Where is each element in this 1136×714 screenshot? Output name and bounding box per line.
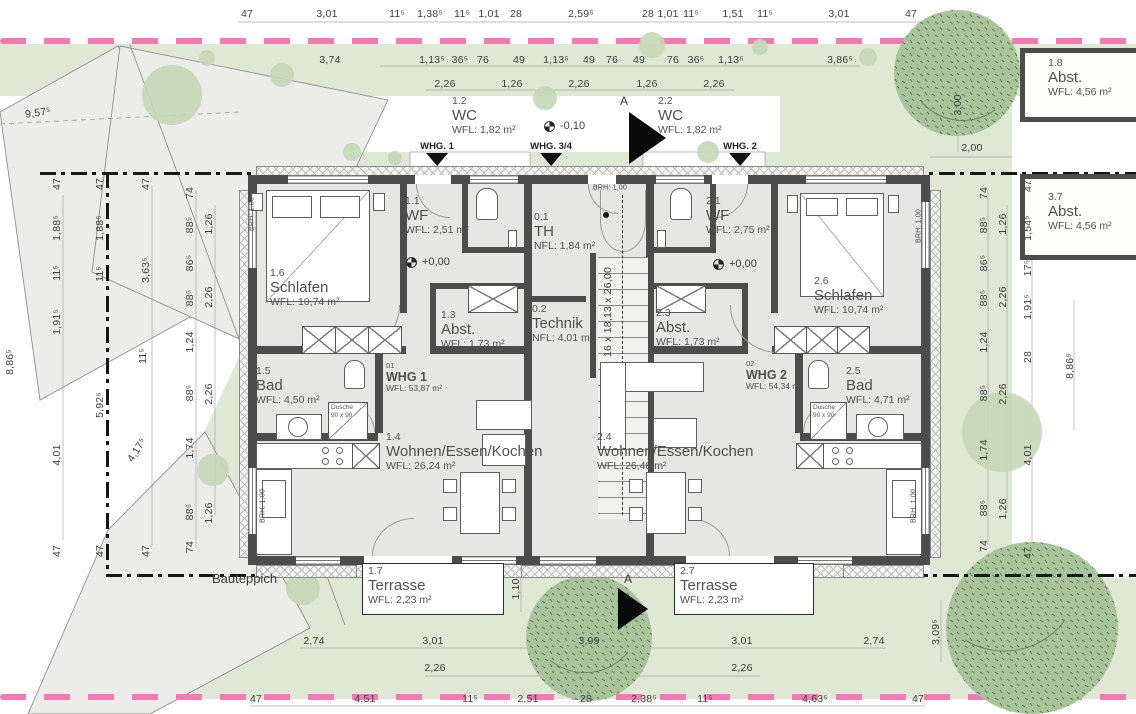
dimension-label: 3,74	[319, 54, 340, 66]
dimension-label: 8,86⁵	[4, 349, 16, 375]
room-area: WFL: 10,74 m²	[814, 305, 883, 317]
dimension-label: 3,01	[828, 8, 849, 20]
dimension-label: 4,63⁵	[802, 693, 828, 705]
dimension-label: 1,01	[657, 8, 678, 20]
room-area: WFL: 2,23 m²	[680, 595, 744, 607]
room-name: WC	[452, 108, 516, 125]
room-label-1.1: 1.1WFWFL: 2,51 m²	[405, 196, 469, 236]
entry-label: WHG. 3/4	[530, 141, 572, 152]
dimension-label: 8,86⁵	[1064, 353, 1076, 379]
dimension-label: 3,99	[578, 635, 599, 647]
room-area: WFL: 1,73 m²	[656, 337, 720, 349]
dimension-label: 1,54⁵	[1022, 215, 1034, 241]
room-area: WFL: 2,51 m²	[405, 225, 469, 237]
dimension-label: 1,26	[997, 213, 1009, 234]
shower-size-label: 90 x 90	[813, 412, 844, 420]
dimension-label: 3,01	[731, 635, 752, 647]
dimension-label: BRH: 1,00	[916, 209, 923, 243]
section-arrow-icon	[618, 588, 648, 635]
elevation-benchmark: +0,00	[713, 258, 757, 270]
room-area: WFL: 1,82 m²	[452, 125, 516, 137]
room-name: WHG 1	[386, 370, 442, 384]
room-area: WFL: 4,71 m²	[846, 395, 910, 407]
dimension-label: 88⁵	[978, 385, 990, 402]
room-label-3.7: 3.7Abst.WFL: 4,56 m²	[1048, 192, 1112, 232]
dimension-label: 3,86⁵	[827, 54, 853, 66]
room-name: Bad	[846, 378, 910, 395]
dimension-label: 88⁵	[184, 504, 196, 521]
entry-arrow-icon	[729, 153, 751, 166]
dimension-label: 49	[633, 54, 645, 66]
dimension-label: 3,00	[952, 94, 964, 115]
room-number: 01	[386, 362, 442, 370]
room-label-1.7: 1.7TerrasseWFL: 2,23 m²	[368, 566, 432, 606]
room-number: 0.1	[534, 212, 595, 224]
dimension-label: 11⁵	[697, 693, 713, 705]
dimension-label: 88⁵	[978, 500, 990, 517]
dimension-label: 5,92⁵	[94, 392, 106, 418]
dimension-label: 1,88⁵	[51, 215, 63, 241]
room-area: WFL: 2,23 m²	[368, 595, 432, 607]
room-area: WFL: 4,50 m²	[256, 395, 320, 407]
room-area: WFL: 1,73 m²	[441, 339, 505, 351]
dimension-label: 47	[94, 178, 106, 190]
dimension-label: 1,24	[978, 331, 990, 352]
room-area: WFL: 53,87 m²	[386, 384, 442, 394]
room-name: WC	[658, 108, 722, 125]
dimension-label: 76	[606, 54, 618, 66]
dimension-label: 47	[250, 693, 262, 705]
dimension-label: 9,57⁵	[24, 105, 51, 120]
room-number: 2.2	[658, 96, 722, 108]
dimension-label: 2,26	[703, 78, 724, 90]
room-name: Schlafen	[814, 288, 883, 305]
room-area: NFL: 4,01 m²	[532, 333, 593, 345]
room-area: NFL: 1,84 m²	[534, 241, 595, 253]
dimension-label: 47	[94, 545, 106, 557]
benchmark-value: +0,00	[729, 258, 757, 270]
room-name: Schlafen	[270, 280, 339, 297]
room-name: Abst.	[441, 322, 505, 339]
dimension-label: 2,59⁵	[568, 8, 594, 20]
dimension-label: 74	[978, 540, 990, 552]
shower-label: Dusche	[331, 404, 365, 412]
dimension-label: 47	[140, 178, 152, 190]
dimension-label: 3,01	[422, 635, 443, 647]
dimension-label: 2,26	[203, 383, 215, 404]
room-name: Bad	[256, 378, 320, 395]
room-name: Abst.	[1048, 204, 1112, 221]
dimension-label: 3,01	[316, 8, 337, 20]
room-name: Technik	[532, 316, 593, 333]
room-label-1.3: 1.3Abst.WFL: 1,73 m²	[441, 310, 505, 350]
dimension-label: 1,13⁵	[543, 54, 569, 66]
entry-marker: WHG. 1	[420, 141, 454, 166]
room-number: 1.4	[386, 432, 543, 444]
dimension-label: 1,26	[203, 502, 215, 523]
dimension-label: 2,38⁵	[631, 693, 657, 705]
dimension-label: 47	[51, 545, 63, 557]
dimension-label: 47	[912, 693, 924, 705]
dimension-label: 88⁵	[978, 290, 990, 307]
shower-size-label: 90 x 90	[331, 412, 365, 420]
room-name: Wohnen/Essen/Kochen	[386, 444, 543, 461]
room-label-1.2: 1.2WCWFL: 1,82 m²	[452, 96, 516, 136]
dimension-label: 11⁵	[389, 8, 405, 20]
dimension-label: 47	[241, 8, 253, 20]
benchmark-value: +0,00	[422, 256, 450, 268]
room-label-2.1: 2.1WFWFL: 2,75 m²	[706, 196, 770, 236]
room-label-0.2: 0.2TechnikNFL: 4,01 m²	[532, 304, 593, 344]
dimension-label: 1,74	[978, 439, 990, 460]
dimension-label: 36⁵	[452, 54, 469, 66]
dimension-label: 74	[978, 187, 990, 199]
room-number: 0.2	[532, 304, 593, 316]
dimension-label: 88⁵	[978, 217, 990, 234]
dimension-label: 47	[140, 545, 152, 557]
dimension-label: 11⁵	[51, 265, 63, 281]
dimension-label: 76	[477, 54, 489, 66]
dimension-label: 1,10	[510, 578, 522, 599]
dimension-label: 88⁵	[184, 290, 196, 307]
entry-arrow-icon	[426, 153, 448, 166]
dimension-label: 47	[51, 178, 63, 190]
dimension-label: 1,91⁵	[51, 309, 63, 335]
benchmark-icon	[544, 121, 555, 132]
elevation-benchmark: +0,00	[406, 256, 450, 268]
room-label-1.4: 1.4Wohnen/Essen/KochenWFL: 26,24 m²	[386, 432, 543, 472]
dimension-label: BRH: 1,00	[260, 489, 267, 523]
room-number: 2.3	[656, 308, 720, 320]
dimension-label: 2,26	[424, 662, 445, 674]
room-label-2.3: 2.3Abst.WFL: 1,73 m²	[656, 308, 720, 348]
room-number: 1.5	[256, 366, 320, 378]
room-name: Wohnen/Essen/Kochen	[597, 444, 754, 461]
dimension-label: 2,26	[997, 383, 1009, 404]
dimension-label: 1,88⁵	[94, 215, 106, 241]
dimension-label: 88⁵	[184, 217, 196, 234]
room-name: WF	[706, 208, 770, 225]
dimension-label: BRH: 1,00	[911, 489, 918, 523]
dimension-label: 2,26	[203, 286, 215, 307]
room-area: WFL: 2,75 m²	[706, 225, 770, 237]
room-area: WFL: 26,24 m²	[386, 461, 543, 473]
room-label-2.6: 2.6SchlafenWFL: 10,74 m²	[814, 276, 883, 316]
room-label-1.5: 1.5BadWFL: 4,50 m²	[256, 366, 320, 406]
dimension-label: 4,17⁵	[125, 436, 149, 464]
dimension-label: 4,01	[1022, 444, 1034, 465]
section-letter: A	[624, 572, 632, 586]
dimension-label: 11⁵	[683, 8, 699, 20]
room-name: Abst.	[656, 320, 720, 337]
dimension-label: 1,26	[636, 78, 657, 90]
entry-marker: WHG. 3/4	[530, 141, 572, 166]
room-number: 02	[746, 360, 802, 368]
room-area: WFL: 1,82 m²	[658, 125, 722, 137]
dimension-label: 1,26	[501, 78, 522, 90]
room-label-0.1: 0.1THNFL: 1,84 m²	[534, 212, 595, 252]
dimension-label: BRH: 1,00	[249, 197, 256, 231]
dimension-label: 74	[184, 541, 196, 553]
room-area: WFL: 54,34 m²	[746, 382, 802, 392]
dimension-label: 1,01	[478, 8, 499, 20]
dimension-label: 1,51	[722, 8, 743, 20]
room-name: Abst.	[1048, 70, 1112, 87]
entry-label: WHG. 1	[420, 141, 454, 152]
room-number: 3.7	[1048, 192, 1112, 204]
dimension-label: 28	[510, 8, 522, 20]
dimension-label: 2,26	[997, 286, 1009, 307]
room-number: 2.5	[846, 366, 910, 378]
dimension-label: 4,01	[51, 444, 63, 465]
dimension-label: 76	[667, 54, 679, 66]
dimension-label: 47	[905, 8, 917, 20]
shower-box: Dusche90 x 90	[810, 402, 847, 440]
room-name: WF	[405, 208, 469, 225]
dimension-label: 28	[1022, 351, 1034, 363]
entry-marker: WHG. 2	[723, 141, 757, 166]
dimension-label: 11⁵	[757, 8, 773, 20]
dimension-label: 11⁵	[94, 266, 106, 282]
shower-label: Dusche	[813, 404, 844, 412]
dimension-label: 47	[1022, 547, 1034, 559]
dimension-label: 2,26	[434, 78, 455, 90]
elevation-benchmark: -0,10	[544, 120, 585, 132]
room-label-01: 01WHG 1WFL: 53,87 m²	[386, 362, 442, 394]
benchmark-icon	[406, 257, 417, 268]
entry-arrow-icon	[540, 153, 562, 166]
dimension-label: 28	[642, 8, 654, 20]
room-number: 2.7	[680, 566, 744, 578]
dimension-label: 2,51	[517, 693, 538, 705]
room-area: WFL: 4,56 m²	[1048, 87, 1112, 99]
dimension-label: 47	[1022, 180, 1034, 192]
room-area: WFL: 10,74 m²	[270, 297, 339, 309]
room-number: 1.2	[452, 96, 516, 108]
room-number: 1.6	[270, 268, 339, 280]
room-label-1.6: 1.6SchlafenWFL: 10,74 m²	[270, 268, 339, 308]
dimension-label: 88⁵	[184, 385, 196, 402]
dimension-label: 28	[580, 693, 592, 705]
room-number: 2.4	[597, 432, 754, 444]
room-name: Terrasse	[368, 578, 432, 595]
dimension-label: 11⁵	[454, 8, 470, 20]
dimension-label: 11⁵	[462, 693, 478, 705]
dimension-label: 1,24	[184, 331, 196, 352]
room-number: 2.6	[814, 276, 883, 288]
dimension-label: 11⁵	[137, 348, 149, 364]
stair-dimension-note: 16 x 18,13 x 26,00	[602, 267, 614, 357]
room-label-02: 02WHG 2WFL: 54,34 m²	[746, 360, 802, 392]
dimension-label: 2,26	[568, 78, 589, 90]
room-number: 1.1	[405, 196, 469, 208]
room-number: 1.7	[368, 566, 432, 578]
dimension-label: 2,00	[961, 142, 982, 154]
room-label-1.8: 1.8Abst.WFL: 4,56 m²	[1048, 58, 1112, 98]
room-name: WHG 2	[746, 368, 802, 382]
dimension-label: 2,74	[863, 635, 884, 647]
dimension-label: BRH: 1,00	[593, 185, 627, 192]
dimension-label: 2,26	[731, 662, 752, 674]
dimension-label: 1,13⁵	[718, 54, 744, 66]
dimension-label: 1,26	[997, 498, 1009, 519]
benchmark-icon	[713, 259, 724, 270]
dimension-label: 36⁵	[688, 54, 705, 66]
dimension-label: 1,91⁵	[1022, 294, 1034, 320]
dimension-label: 2,74	[303, 635, 324, 647]
dimension-label: 3,09⁵	[930, 619, 942, 645]
dimension-label: 49	[583, 54, 595, 66]
room-label-2.4: 2.4Wohnen/Essen/KochenWFL: 26,48 m²	[597, 432, 754, 472]
room-number: 1.8	[1048, 58, 1112, 70]
room-label-2.2: 2.2WCWFL: 1,82 m²	[658, 96, 722, 136]
dimension-label: 49	[513, 54, 525, 66]
dimension-label: 86⁵	[978, 255, 990, 272]
section-letter: A	[620, 94, 628, 108]
dimension-label: 4,51	[354, 693, 375, 705]
benchmark-value: -0,10	[560, 120, 585, 132]
room-number: 1.3	[441, 310, 505, 322]
floor-plan-canvas: Bauteppich 473,0111⁵1,38⁵11⁵1,01282,59⁵2…	[0, 0, 1136, 714]
room-label-2.7: 2.7TerrasseWFL: 2,23 m²	[680, 566, 744, 606]
room-name: Terrasse	[680, 578, 744, 595]
entry-label: WHG. 2	[723, 141, 757, 152]
dimension-label: 1,13⁵	[419, 54, 445, 66]
annotation-layer: 473,0111⁵1,38⁵11⁵1,01282,59⁵281,0111⁵1,5…	[0, 0, 1136, 714]
dimension-label: 1,38⁵	[417, 8, 443, 20]
shower-box: Dusche90 x 90	[328, 402, 368, 440]
dimension-label: 17⁵	[1022, 260, 1034, 277]
dimension-label: 3,63⁵	[140, 257, 152, 283]
room-area: WFL: 26,48 m²	[597, 461, 754, 473]
dimension-label: 86⁵	[184, 255, 196, 272]
room-number: 2.1	[706, 196, 770, 208]
room-label-2.5: 2.5BadWFL: 4,71 m²	[846, 366, 910, 406]
room-area: WFL: 4,56 m²	[1048, 221, 1112, 233]
dimension-label: 74	[184, 187, 196, 199]
room-name: TH	[534, 224, 595, 241]
section-arrow-icon	[629, 112, 666, 169]
dimension-label: 1,74	[184, 437, 196, 458]
dimension-label: 1,26	[203, 213, 215, 234]
